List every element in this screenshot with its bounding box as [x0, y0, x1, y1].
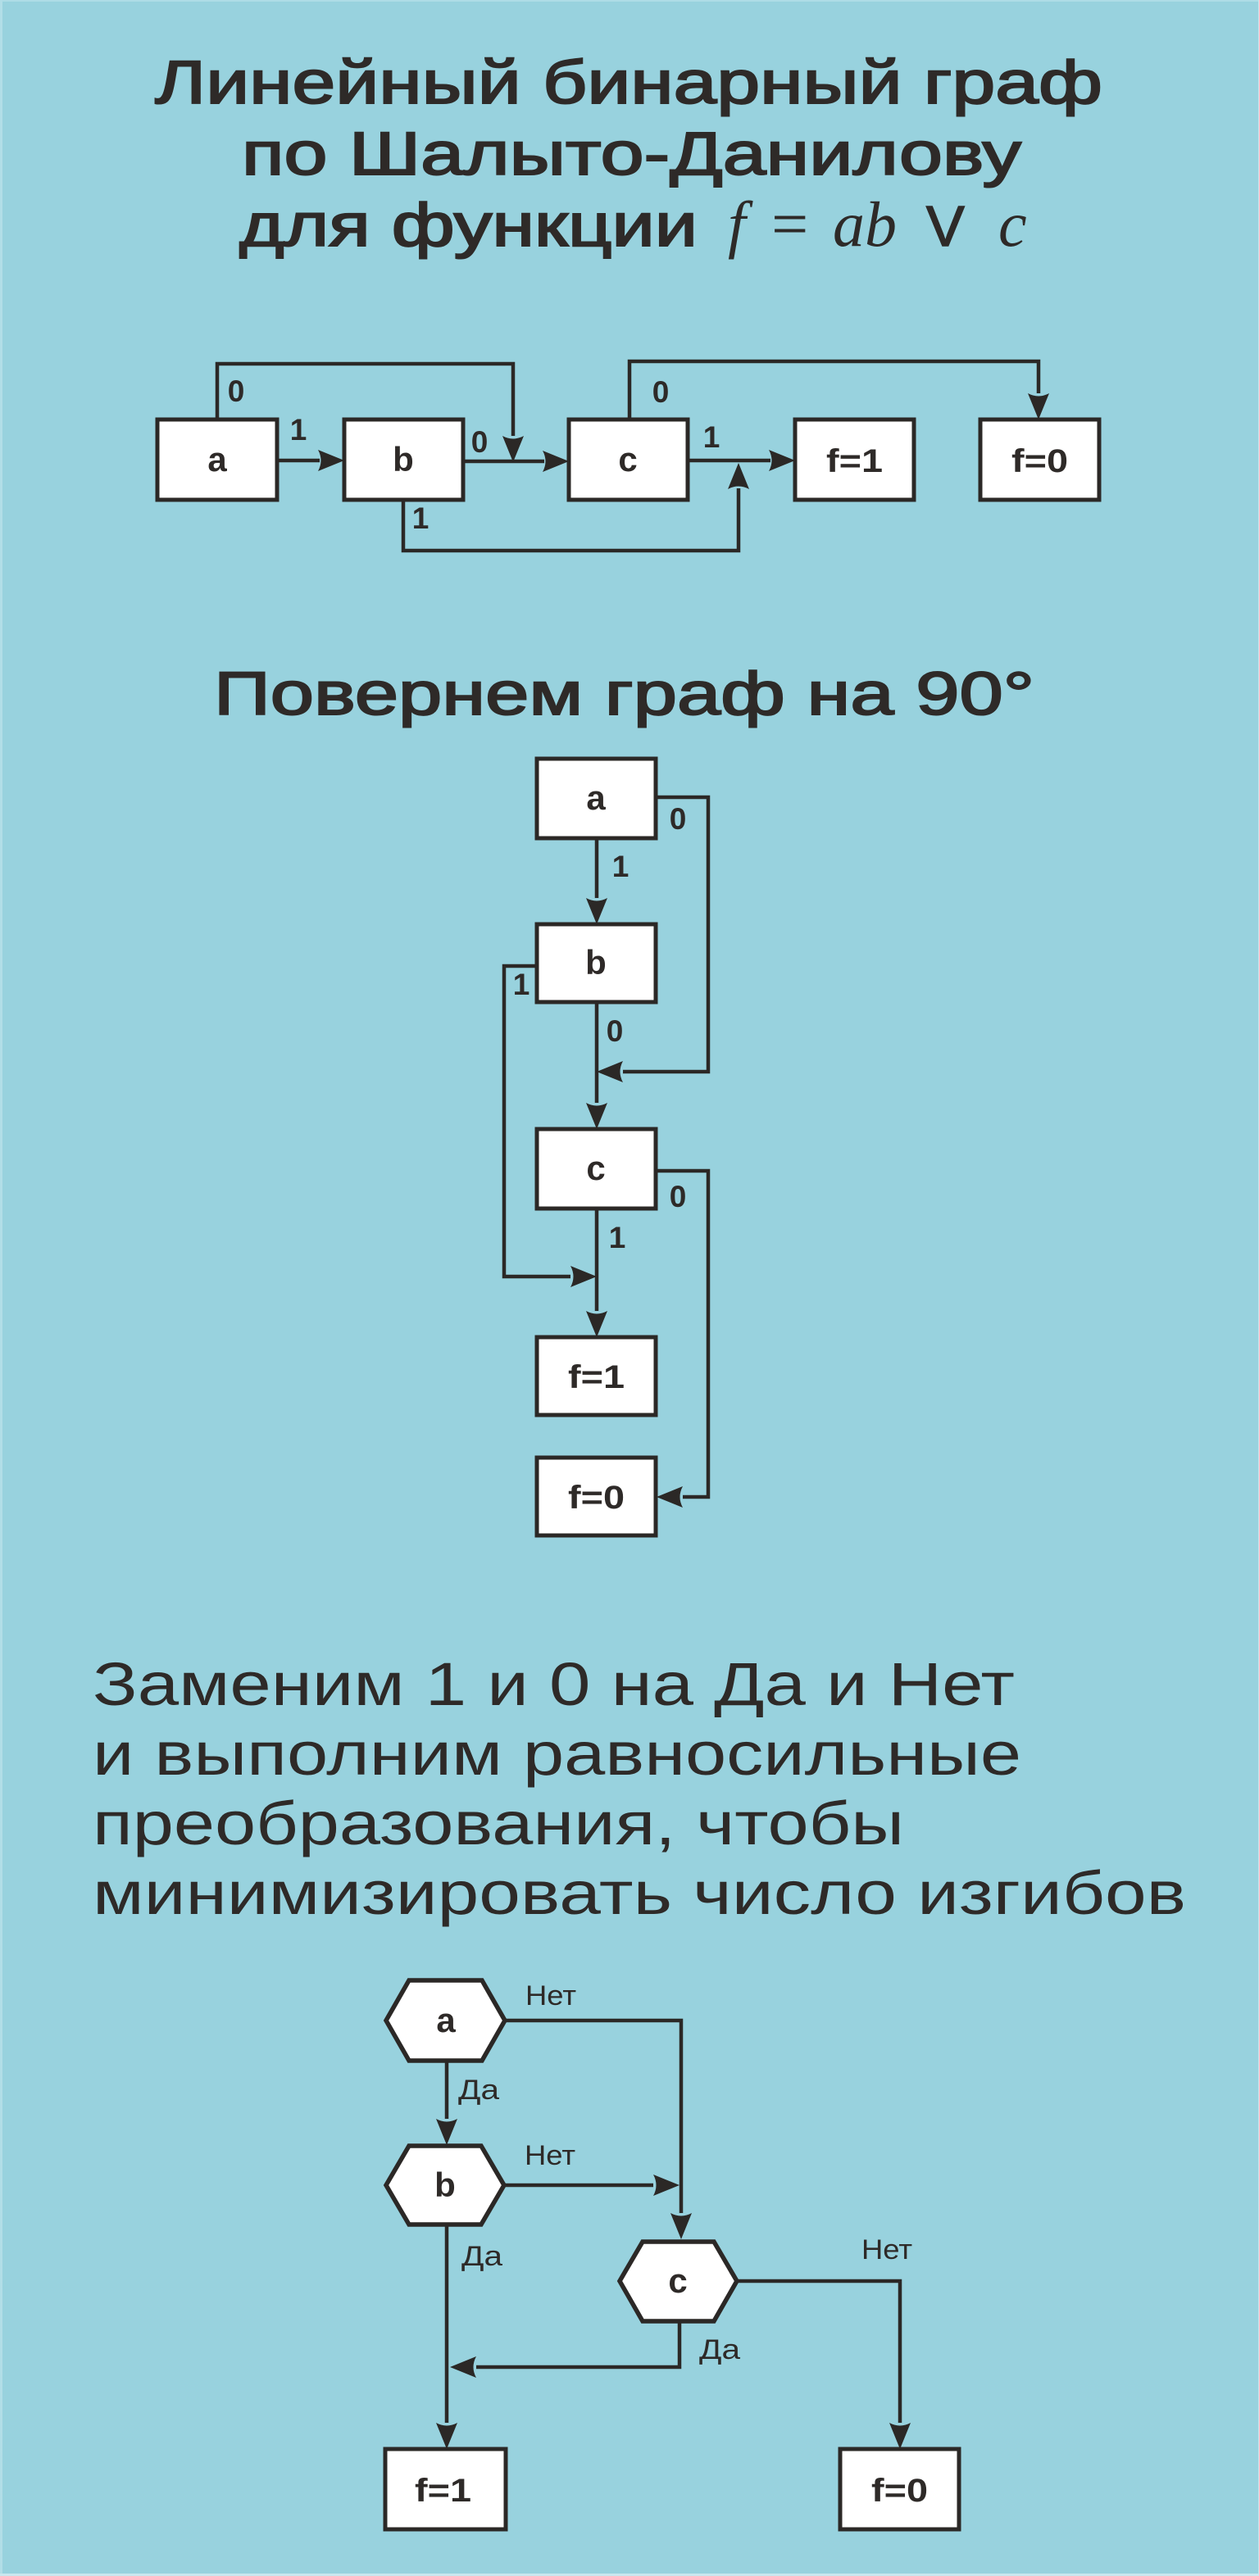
svg-text:1: 1: [290, 413, 307, 447]
svg-text:b: b: [434, 2166, 456, 2204]
svg-text:V: V: [926, 194, 965, 258]
svg-text:0: 0: [670, 1180, 687, 1213]
svg-text:f=0: f=0: [1011, 443, 1068, 479]
svg-text:f=0: f=0: [568, 1480, 625, 1516]
svg-text:f: f: [728, 188, 753, 260]
svg-text:b: b: [393, 440, 414, 478]
svg-text:0: 0: [471, 425, 489, 459]
svg-text:a: a: [436, 2001, 456, 2039]
svg-text:c: c: [618, 440, 637, 478]
svg-text:b: b: [585, 943, 607, 982]
svg-text:a: a: [586, 778, 606, 817]
svg-text:=: =: [767, 188, 811, 261]
svg-text:ab: ab: [833, 188, 897, 260]
svg-text:c: c: [998, 188, 1027, 260]
svg-text:Заменим 1 и 0 на Да и Нет: Заменим 1 и 0 на Да и Нет: [93, 1650, 1015, 1718]
svg-text:преобразования, чтобы: преобразования, чтобы: [93, 1789, 904, 1857]
svg-text:Линейный бинарный граф: Линейный бинарный граф: [155, 48, 1102, 116]
svg-text:Нет: Нет: [525, 1980, 576, 2011]
svg-text:0: 0: [670, 802, 687, 836]
svg-text:1: 1: [612, 850, 629, 883]
svg-text:f=1: f=1: [568, 1359, 625, 1395]
svg-text:Да: Да: [461, 2241, 502, 2272]
svg-text:c: c: [586, 1149, 605, 1187]
svg-text:c: c: [668, 2261, 687, 2300]
svg-text:Да: Да: [699, 2334, 740, 2365]
svg-text:1: 1: [609, 1221, 626, 1254]
svg-text:по Шалыто-Данилову: по Шалыто-Данилову: [242, 120, 1021, 188]
svg-text:0: 0: [652, 375, 670, 409]
svg-text:0: 0: [607, 1014, 624, 1048]
svg-text:a: a: [207, 440, 227, 478]
svg-text:и выполним равносильные: и выполним равносильные: [93, 1720, 1021, 1788]
svg-text:Нет: Нет: [525, 2140, 575, 2171]
svg-text:f=1: f=1: [826, 443, 883, 479]
svg-text:Нет: Нет: [861, 2234, 912, 2265]
svg-text:1: 1: [703, 420, 720, 454]
svg-text:0: 0: [228, 374, 245, 408]
svg-text:f=0: f=0: [871, 2473, 928, 2509]
svg-text:1: 1: [513, 968, 530, 1001]
svg-text:для функции: для функции: [239, 191, 698, 259]
svg-text:f=1: f=1: [415, 2473, 471, 2509]
svg-text:1: 1: [412, 501, 430, 535]
svg-text:Да: Да: [458, 2075, 499, 2106]
svg-text:Повернем граф на 90°: Повернем граф на 90°: [214, 660, 1034, 728]
svg-text:минимизировать число изгибов: минимизировать число изгибов: [93, 1859, 1186, 1927]
